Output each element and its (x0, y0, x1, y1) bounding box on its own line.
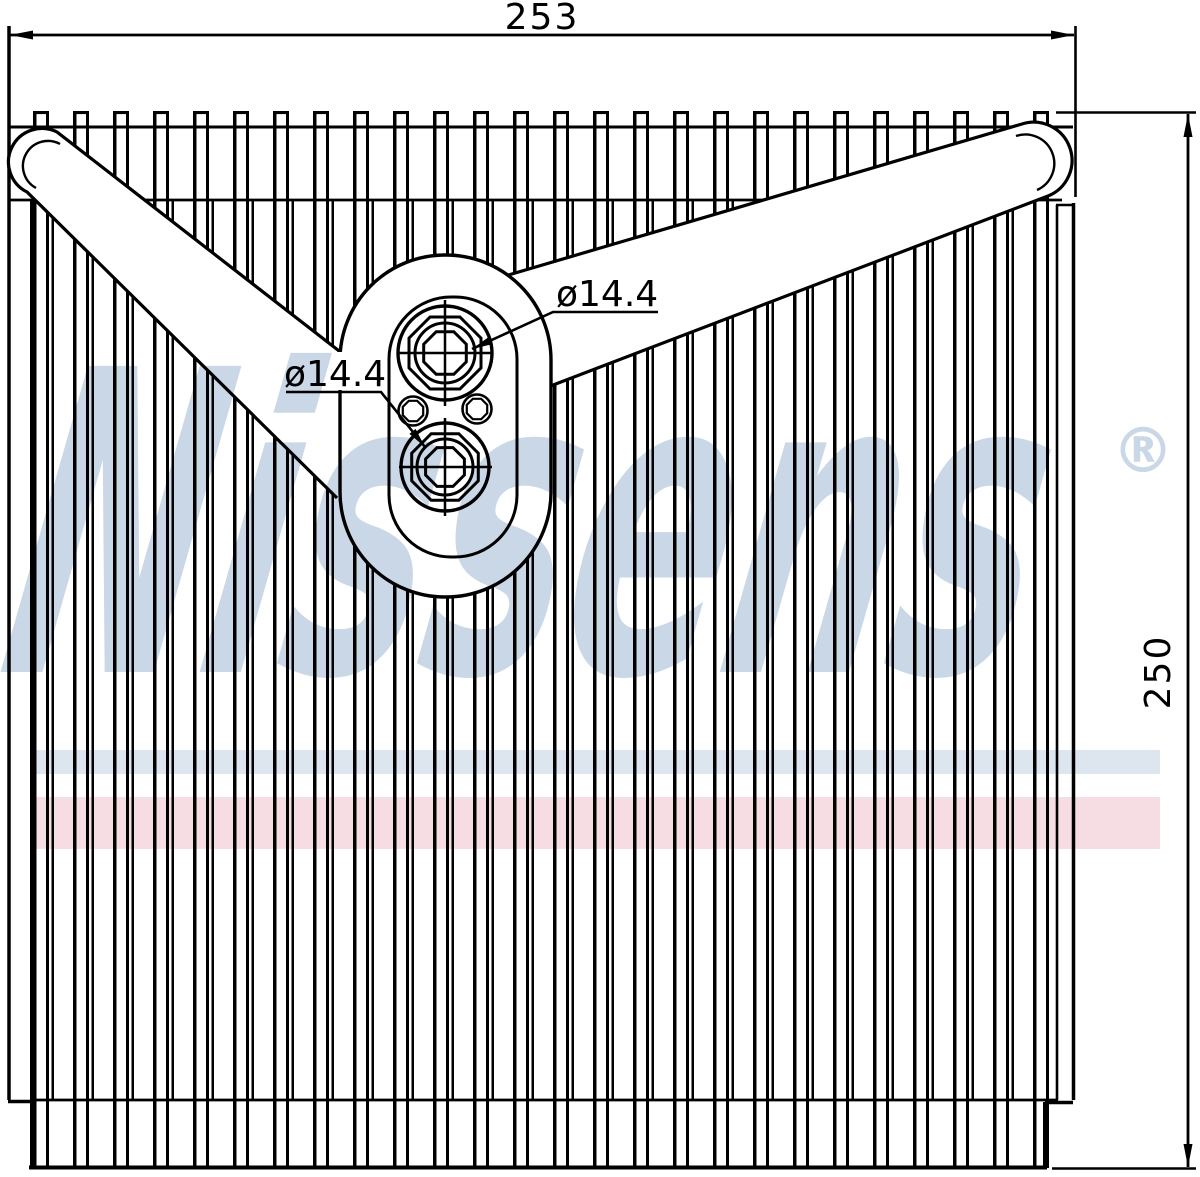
height-dimension-label: 250 (1138, 635, 1179, 710)
height-arrow-bottom (1184, 1144, 1193, 1167)
width-arrow-left (10, 31, 33, 40)
height-arrow-top (1184, 114, 1193, 137)
bottom-port-diameter-label: ø14.4 (284, 354, 386, 395)
tab-caps (33, 111, 1050, 114)
top-port-diameter-label: ø14.4 (556, 274, 658, 315)
drawing-canvas: ø14.4 ø14.4 253 250 (0, 0, 1200, 1177)
expansion-valve-fitting (340, 255, 551, 597)
small-port-right (463, 395, 492, 424)
width-arrow-right (1051, 31, 1074, 40)
width-dimension-label: 253 (505, 0, 580, 38)
evaporator-technical-drawing: ø14.4 ø14.4 253 250 Nissens ® (0, 0, 1200, 1177)
